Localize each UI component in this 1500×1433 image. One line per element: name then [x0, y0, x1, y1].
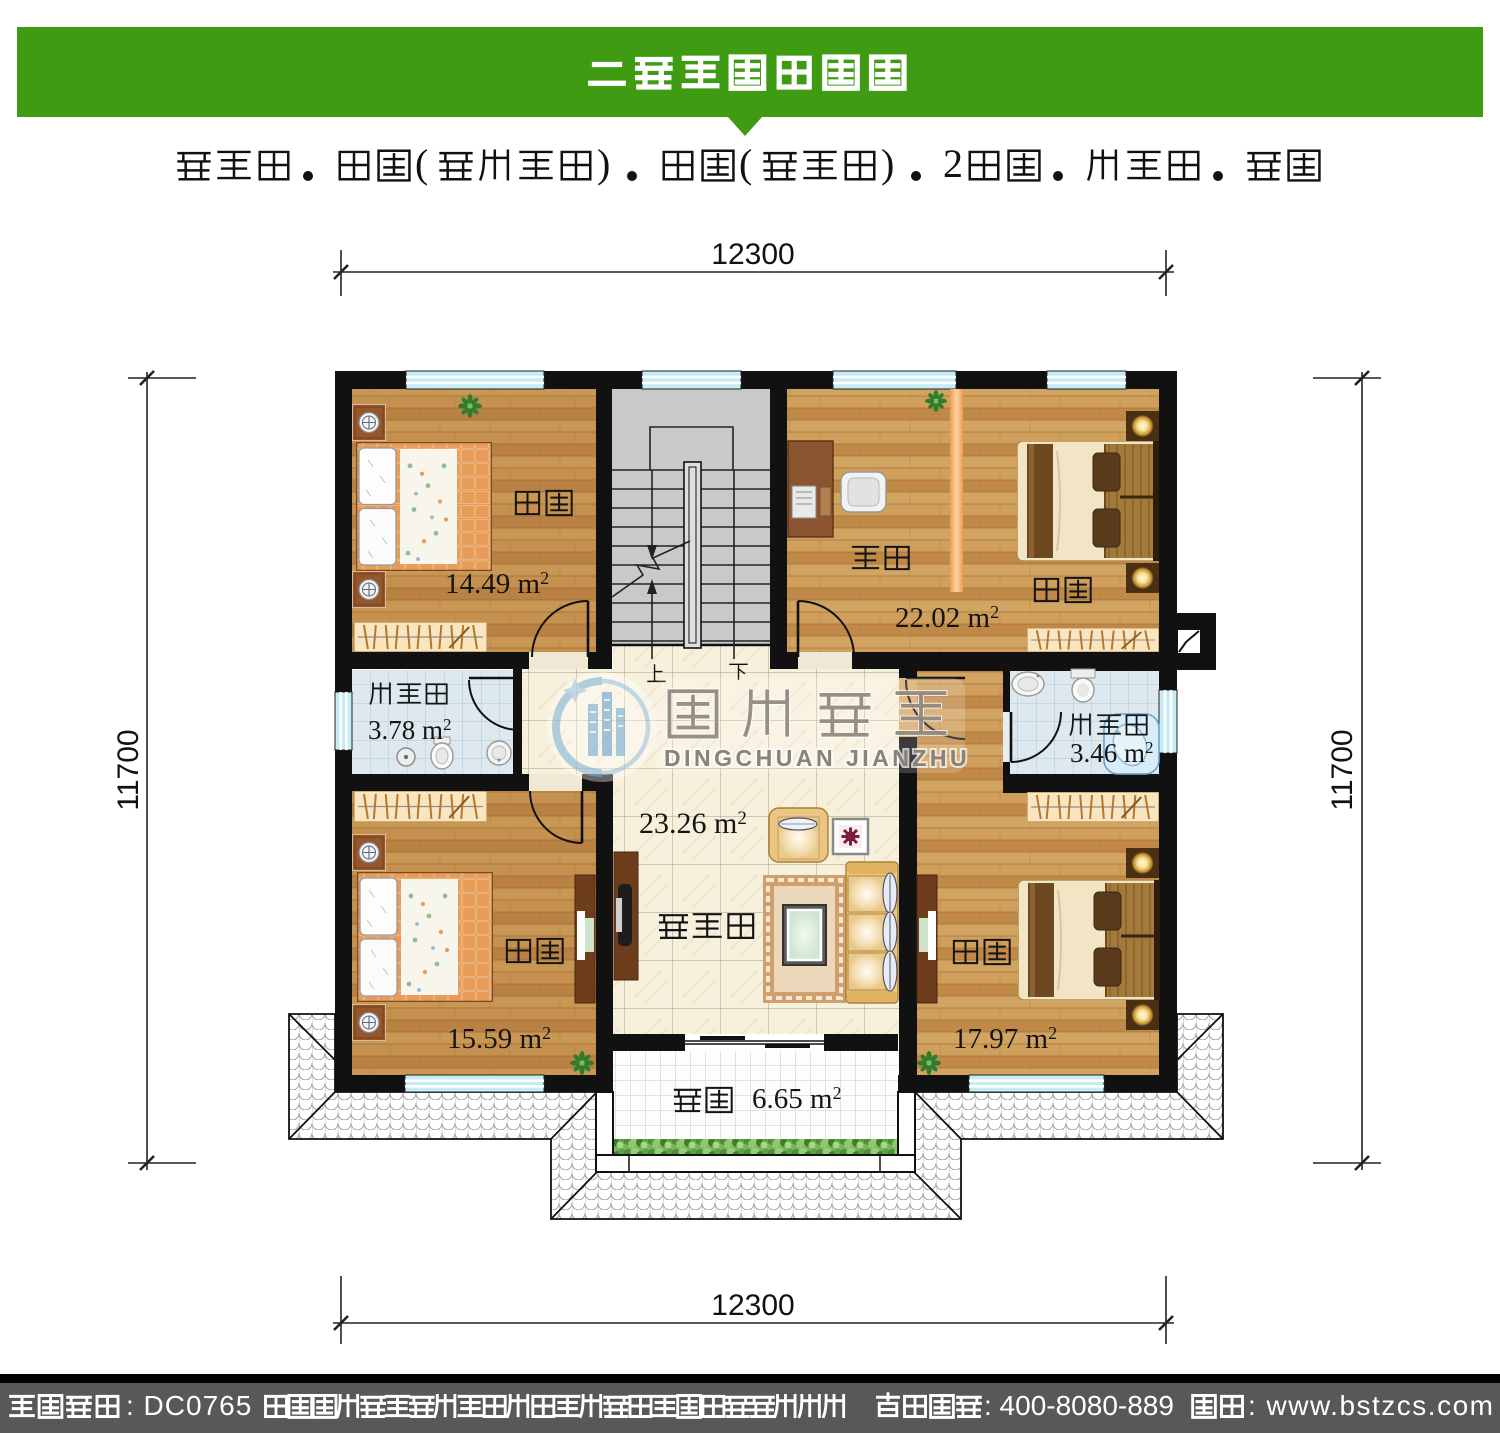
svg-text:(: ( [415, 141, 428, 186]
svg-text:6.65 m2: 6.65 m2 [752, 1083, 842, 1115]
svg-text:12300: 12300 [711, 1289, 794, 1322]
svg-text:3.46 m2: 3.46 m2 [1070, 738, 1154, 768]
svg-text:11700: 11700 [1326, 729, 1359, 810]
svg-text:: 400-8080-889: : 400-8080-889 [984, 1390, 1174, 1421]
svg-text:23.26 m2: 23.26 m2 [639, 807, 747, 840]
svg-text:22.02 m2: 22.02 m2 [895, 602, 999, 634]
svg-text:2: 2 [943, 141, 963, 186]
svg-text:17.97 m2: 17.97 m2 [953, 1023, 1057, 1055]
svg-text:): ) [597, 141, 610, 186]
svg-text:(: ( [739, 141, 752, 186]
svg-text:14.49 m2: 14.49 m2 [445, 568, 549, 600]
svg-text:): ) [881, 141, 894, 186]
svg-text:12300: 12300 [711, 238, 794, 271]
svg-text:11700: 11700 [112, 729, 145, 810]
svg-text:3.78 m2: 3.78 m2 [368, 715, 452, 745]
svg-text:15.59 m2: 15.59 m2 [447, 1023, 551, 1055]
svg-text:: www.bstzcs.com: : www.bstzcs.com [1248, 1390, 1494, 1421]
svg-text:DINGCHUAN JIANZHU: DINGCHUAN JIANZHU [664, 745, 970, 771]
svg-text:: DC0765: : DC0765 [126, 1390, 252, 1421]
